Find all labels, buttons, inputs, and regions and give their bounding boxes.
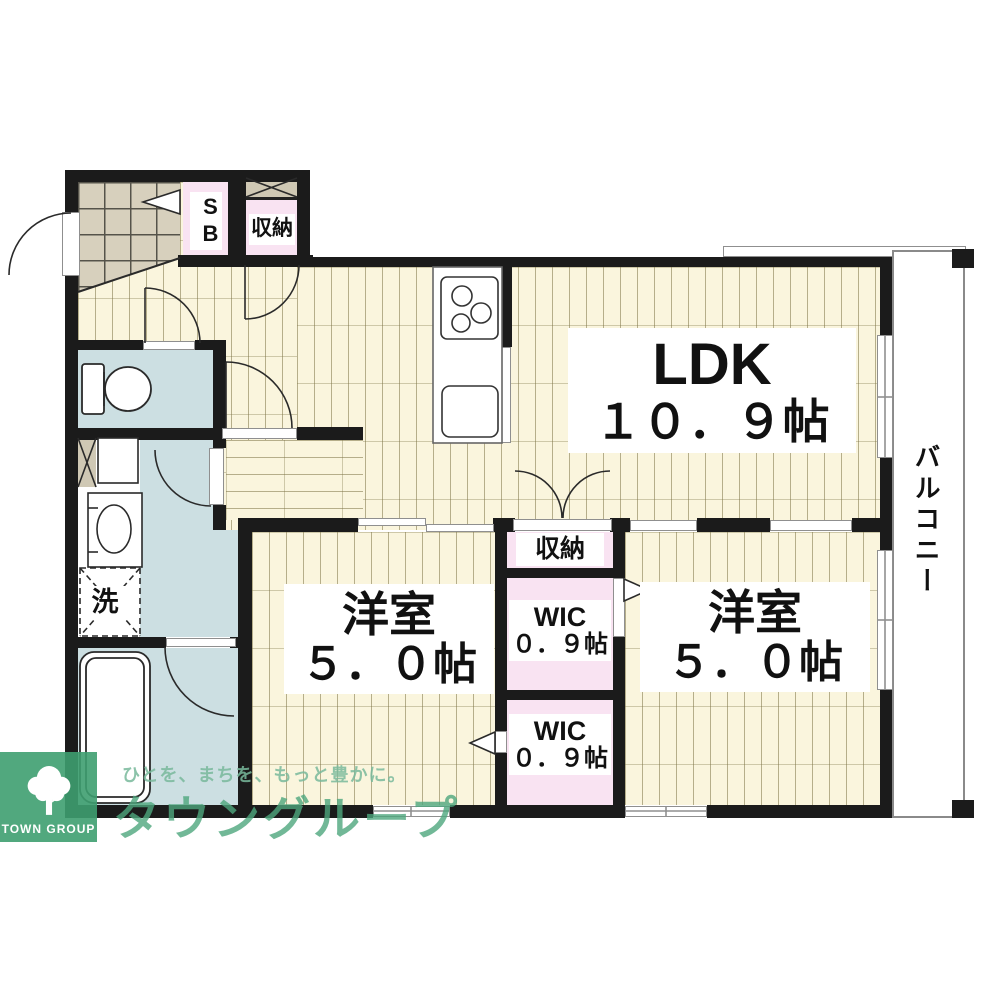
ellipse bbox=[97, 505, 131, 553]
floor-plan: LDK １０．９帖 洋室 ５．０帖 洋室 ５．０帖 WIC ０．９帖 WIC ０… bbox=[0, 0, 1000, 1000]
label-shoe-box: SB bbox=[190, 192, 222, 250]
label-storage-ldk: 収納 bbox=[516, 533, 604, 566]
kitchen-sink bbox=[442, 386, 498, 437]
town-group-tree-icon bbox=[18, 763, 80, 821]
polygon bbox=[470, 732, 495, 754]
ellipse bbox=[105, 367, 151, 411]
path bbox=[145, 288, 200, 343]
label-laundry: 洗 bbox=[84, 586, 126, 619]
ldk-size: １０．９帖 bbox=[568, 397, 856, 448]
path bbox=[226, 362, 292, 428]
toilet-fixture bbox=[82, 364, 151, 414]
brand-logo-block: TOWN GROUP bbox=[0, 752, 97, 842]
wic-upper-size: ０．９帖 bbox=[509, 632, 611, 658]
entry-step-line bbox=[78, 258, 180, 292]
washbasin bbox=[88, 438, 142, 567]
room-label-bedroom-right: 洋室 ５．０帖 bbox=[640, 582, 870, 692]
g bbox=[27, 766, 70, 815]
path bbox=[155, 450, 211, 506]
room-label-wic-upper: WIC ０．９帖 bbox=[509, 600, 611, 661]
brand-company: タウングループ bbox=[113, 780, 460, 849]
label-balcony: バルコニー bbox=[908, 443, 945, 598]
bedroom-right-size: ５．０帖 bbox=[640, 639, 870, 687]
circle bbox=[452, 286, 472, 306]
path bbox=[165, 647, 234, 716]
path bbox=[563, 471, 610, 518]
bedroom-right-name: 洋室 bbox=[640, 588, 870, 639]
bedroom-left-name: 洋室 bbox=[284, 590, 494, 641]
path bbox=[45, 790, 51, 814]
fixtures-overlay bbox=[0, 0, 1000, 1000]
wic-lower-name: WIC bbox=[509, 717, 611, 746]
rect bbox=[82, 364, 104, 414]
rect bbox=[98, 438, 138, 483]
room-label-ldk: LDK １０．９帖 bbox=[568, 328, 856, 453]
path bbox=[9, 213, 71, 275]
label-storage-hall: 収納 bbox=[249, 214, 295, 245]
polygon bbox=[143, 190, 180, 214]
circle bbox=[452, 314, 470, 332]
path bbox=[515, 471, 562, 518]
room-label-wic-lower: WIC ０．９帖 bbox=[509, 714, 611, 775]
wic-lower-size: ０．９帖 bbox=[509, 746, 611, 772]
rect bbox=[442, 386, 498, 437]
path bbox=[245, 265, 299, 319]
bedroom-left-size: ５．０帖 bbox=[284, 641, 494, 689]
wic-upper-name: WIC bbox=[509, 603, 611, 632]
room-label-bedroom-left: 洋室 ５．０帖 bbox=[284, 584, 494, 694]
brand-logo-text: TOWN GROUP bbox=[2, 822, 96, 836]
kitchen-stove bbox=[441, 277, 498, 339]
ldk-name: LDK bbox=[568, 334, 856, 397]
circle bbox=[471, 303, 491, 323]
